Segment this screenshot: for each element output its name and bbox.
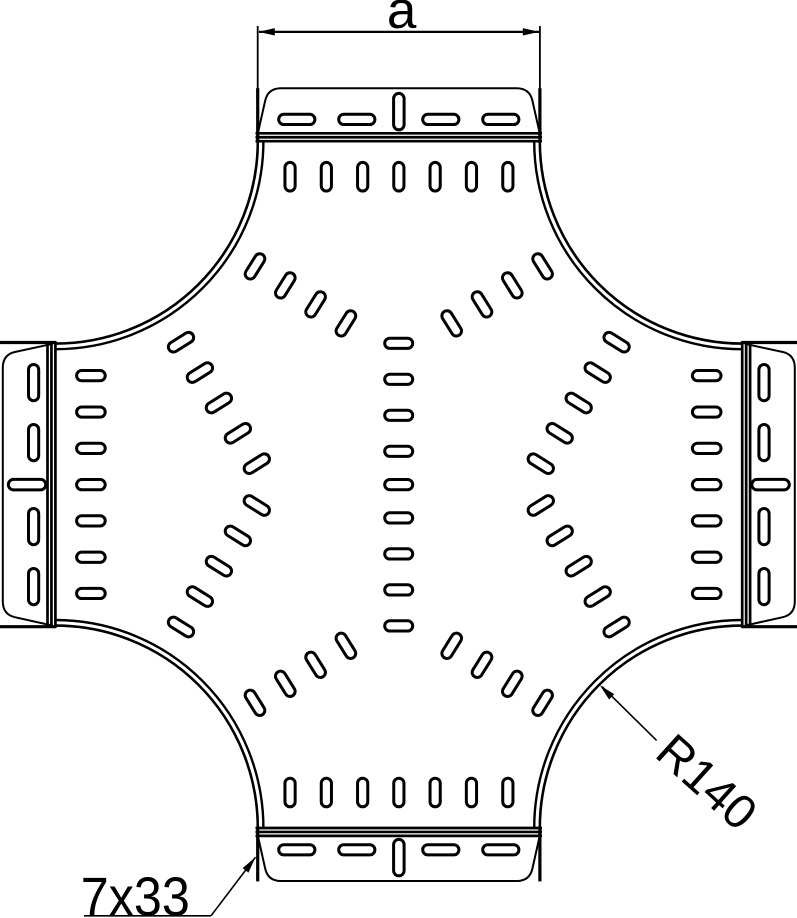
svg-text:R140: R140 [646,725,767,841]
svg-text:7x33: 7x33 [81,865,190,918]
svg-text:a: a [387,0,417,40]
